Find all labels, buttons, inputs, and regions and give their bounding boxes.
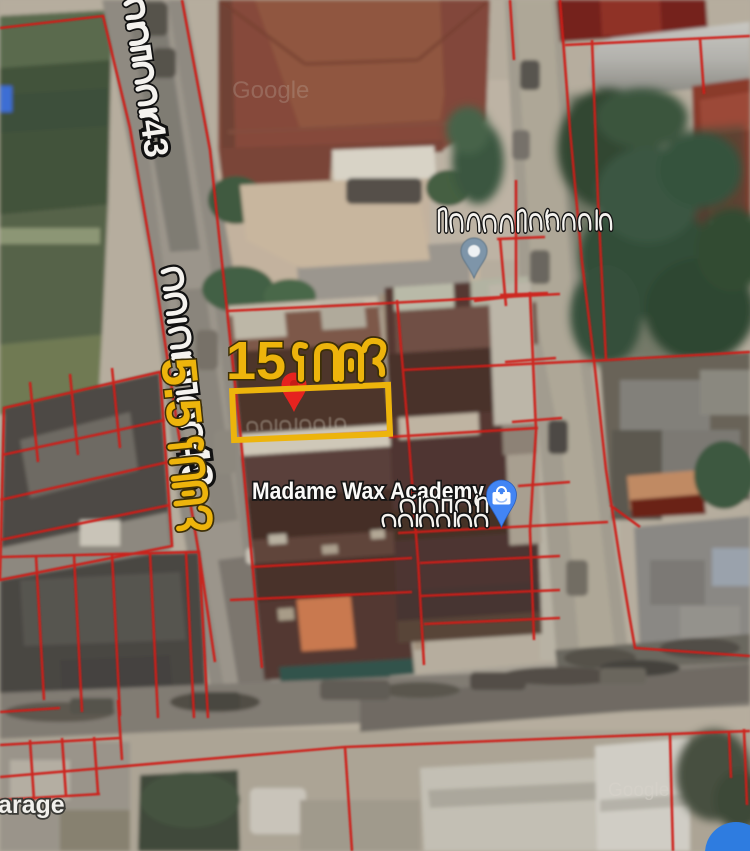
svg-text:Google: Google: [232, 77, 309, 104]
svg-text:15: 15: [226, 331, 286, 391]
svg-text:Google: Google: [608, 780, 669, 801]
svg-text:5.5: 5.5: [150, 355, 213, 430]
svg-text:43: 43: [133, 117, 176, 160]
svg-text:arage: arage: [0, 791, 65, 819]
